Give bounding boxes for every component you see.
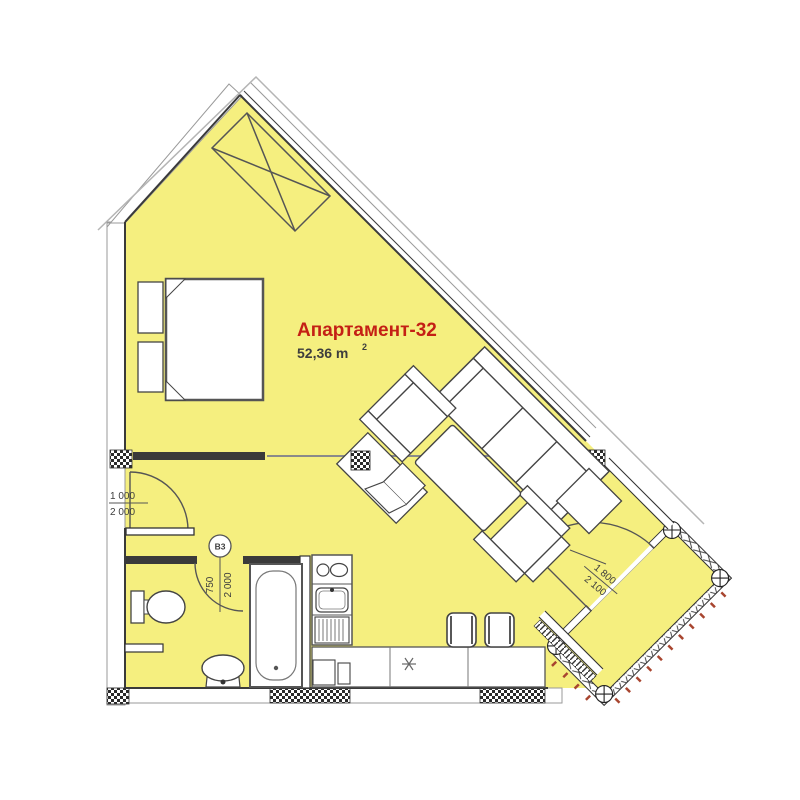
floor-plan: Апартамент-32 52,36 m 2 1 000 2 000 B3 7… — [0, 0, 800, 800]
area-label: 52,36 m — [297, 345, 348, 361]
faucet-icon — [221, 680, 226, 685]
wall-column — [480, 688, 545, 703]
kitchen-unit — [312, 555, 352, 645]
hall-wall-stub — [126, 528, 194, 535]
area-superscript: 2 — [362, 342, 367, 352]
washbasin — [202, 655, 244, 687]
bar-stool — [447, 613, 476, 647]
svg-text:B3: B3 — [215, 542, 226, 552]
svg-text:1 000: 1 000 — [110, 491, 135, 502]
cabinet — [338, 663, 350, 684]
drain-icon — [274, 666, 278, 670]
wall-column — [270, 688, 350, 703]
nightstand — [138, 342, 163, 392]
cabinet — [313, 660, 335, 685]
tv-icon — [351, 451, 370, 470]
toilet — [131, 591, 185, 623]
wall-column — [110, 450, 132, 468]
wall-column — [107, 688, 129, 704]
bar-stool — [485, 613, 514, 647]
bedroom-wall — [133, 452, 265, 460]
faucet-icon — [330, 588, 334, 592]
floor-plan-page: Апартамент-32 52,36 m 2 1 000 2 000 B3 7… — [0, 0, 800, 800]
svg-text:750: 750 — [205, 576, 216, 593]
kitchen-counter — [312, 647, 545, 687]
nightstand — [138, 282, 163, 333]
bathroom-stub-wall — [125, 644, 163, 652]
bathtub — [250, 564, 302, 687]
svg-text:2 000: 2 000 — [110, 507, 135, 518]
svg-text:2 000: 2 000 — [223, 572, 234, 597]
apartment-title: Апартамент-32 — [297, 320, 437, 341]
bed — [166, 279, 263, 400]
bathroom-wall — [125, 556, 197, 564]
